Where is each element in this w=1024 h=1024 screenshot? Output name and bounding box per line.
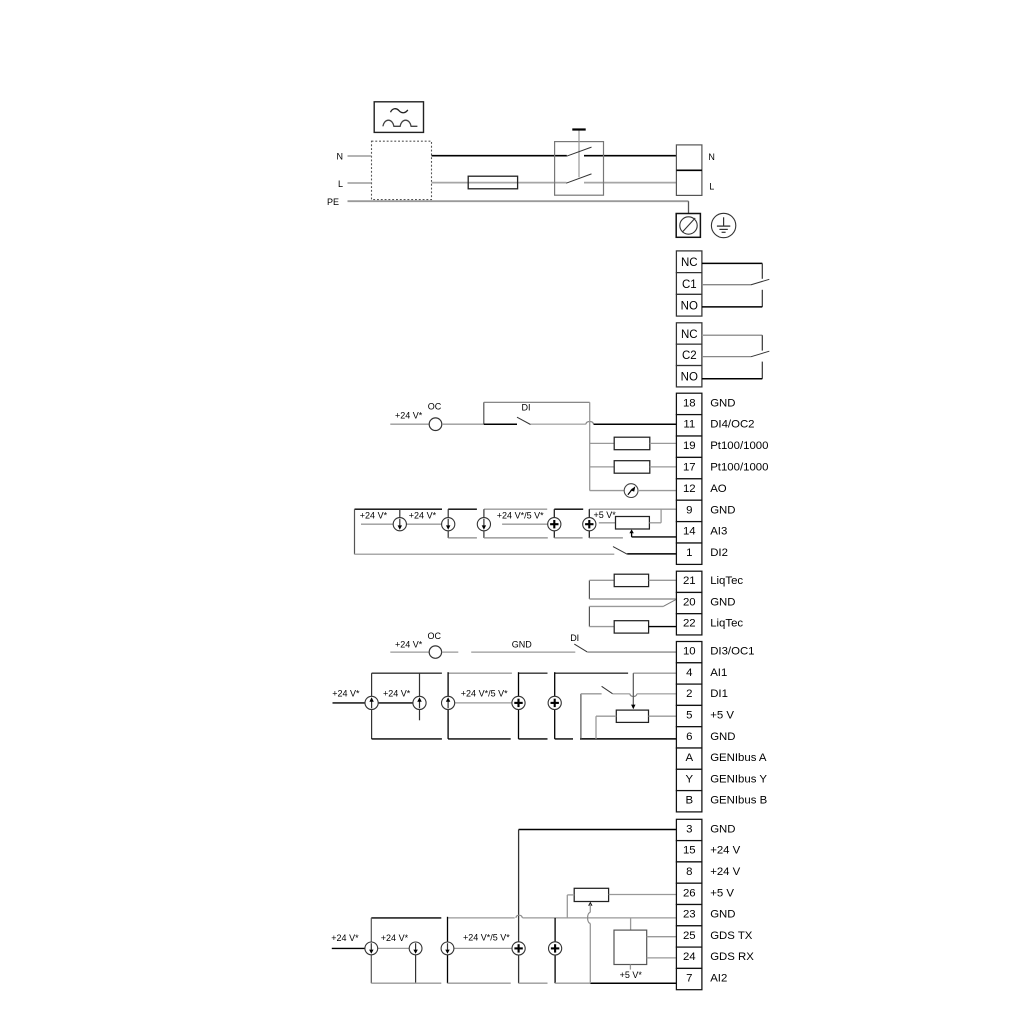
svg-text:AO: AO <box>710 483 727 495</box>
svg-text:LiqTec: LiqTec <box>710 575 743 587</box>
svg-text:23: 23 <box>683 909 696 921</box>
svg-text:DI1: DI1 <box>710 688 728 700</box>
svg-text:Pt100/1000: Pt100/1000 <box>710 462 768 474</box>
svg-text:DI4/OC2: DI4/OC2 <box>710 419 754 431</box>
svg-text:+24 V: +24 V <box>710 845 740 857</box>
svg-text:DI3/OC1: DI3/OC1 <box>710 646 754 658</box>
svg-text:19: 19 <box>683 440 696 452</box>
svg-text:GENIbus A: GENIbus A <box>710 752 767 764</box>
svg-text:20: 20 <box>683 596 696 608</box>
svg-text:+24 V*: +24 V* <box>360 510 388 520</box>
svg-text:GENIbus Y: GENIbus Y <box>710 773 767 785</box>
svg-text:14: 14 <box>683 526 696 538</box>
svg-text:NC: NC <box>681 329 698 341</box>
svg-text:+24 V*: +24 V* <box>381 933 409 943</box>
svg-text:+24 V*/5 V*: +24 V*/5 V* <box>463 932 510 942</box>
svg-text:DI: DI <box>570 633 579 643</box>
svg-text:GDS RX: GDS RX <box>710 951 754 963</box>
svg-text:+5 V*: +5 V* <box>594 510 617 520</box>
svg-text:+5 V: +5 V <box>710 887 734 899</box>
svg-text:AI2: AI2 <box>710 972 727 984</box>
svg-text:GND: GND <box>710 731 735 743</box>
svg-text:15: 15 <box>683 845 696 857</box>
svg-text:NC: NC <box>681 257 698 269</box>
svg-text:+24 V: +24 V <box>710 866 740 878</box>
svg-text:LiqTec: LiqTec <box>710 618 743 630</box>
svg-text:GND: GND <box>710 397 735 409</box>
svg-text:GND: GND <box>710 596 735 608</box>
svg-text:AI3: AI3 <box>710 526 727 538</box>
svg-text:18: 18 <box>683 397 696 409</box>
svg-text:22: 22 <box>683 618 696 630</box>
svg-text:11: 11 <box>683 419 695 431</box>
svg-text:GND: GND <box>710 909 735 921</box>
svg-text:24: 24 <box>683 951 696 963</box>
svg-text:L: L <box>338 179 343 189</box>
svg-text:AI1: AI1 <box>710 667 727 679</box>
svg-text:+24 V*: +24 V* <box>383 688 411 698</box>
svg-text:9: 9 <box>686 504 692 516</box>
svg-text:4: 4 <box>686 667 692 679</box>
svg-text:DI2: DI2 <box>710 547 728 559</box>
svg-text:C1: C1 <box>682 279 697 291</box>
svg-text:6: 6 <box>686 731 692 743</box>
svg-text:+24 V*: +24 V* <box>332 688 360 698</box>
svg-text:+24 V*: +24 V* <box>395 411 423 421</box>
svg-text:GND: GND <box>710 823 735 835</box>
svg-text:+24 V*/5 V*: +24 V*/5 V* <box>497 510 544 520</box>
svg-text:+24 V*/5 V*: +24 V*/5 V* <box>461 689 508 699</box>
svg-text:10: 10 <box>683 646 696 658</box>
svg-text:25: 25 <box>683 930 696 942</box>
svg-text:GND: GND <box>710 504 735 516</box>
svg-text:21: 21 <box>683 575 696 587</box>
svg-text:NO: NO <box>681 372 698 384</box>
svg-text:Pt100/1000: Pt100/1000 <box>710 440 768 452</box>
svg-text:B: B <box>685 795 693 807</box>
svg-text:7: 7 <box>686 972 692 984</box>
svg-text:PE: PE <box>327 197 339 207</box>
svg-text:N: N <box>708 152 715 162</box>
svg-text:+5 V: +5 V <box>710 709 734 721</box>
svg-text:A: A <box>685 752 693 764</box>
svg-text:OC: OC <box>428 631 442 641</box>
svg-text:8: 8 <box>686 866 692 878</box>
svg-text:17: 17 <box>683 462 696 474</box>
svg-text:12: 12 <box>683 483 696 495</box>
svg-text:OC: OC <box>428 401 442 411</box>
svg-text:NO: NO <box>681 301 698 313</box>
svg-text:3: 3 <box>686 823 692 835</box>
svg-text:26: 26 <box>683 887 696 899</box>
svg-text:Y: Y <box>685 773 693 785</box>
svg-text:L: L <box>709 182 714 192</box>
svg-text:C2: C2 <box>682 350 697 362</box>
svg-text:1: 1 <box>686 547 692 559</box>
svg-text:2: 2 <box>686 688 692 700</box>
svg-text:DI: DI <box>522 402 531 412</box>
svg-text:GDS TX: GDS TX <box>710 930 753 942</box>
svg-text:N: N <box>337 152 344 162</box>
svg-text:GENIbus B: GENIbus B <box>710 795 767 807</box>
svg-text:+5 V*: +5 V* <box>620 970 643 980</box>
svg-text:+24 V*: +24 V* <box>409 510 437 520</box>
svg-text:+24 V*: +24 V* <box>395 639 423 649</box>
svg-text:+24 V*: +24 V* <box>331 933 359 943</box>
svg-text:GND: GND <box>512 639 533 649</box>
svg-text:5: 5 <box>686 709 692 721</box>
